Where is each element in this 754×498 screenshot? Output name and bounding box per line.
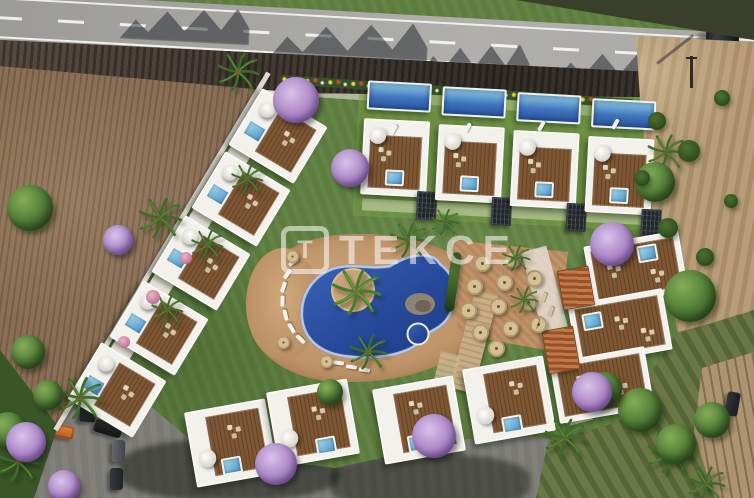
tree	[656, 424, 696, 464]
pool-umbrella	[320, 355, 333, 368]
deck-furniture	[409, 401, 415, 407]
jacaranda-tree	[572, 372, 612, 412]
palm-tree	[509, 285, 539, 315]
shrub	[634, 170, 650, 186]
straw-umbrella	[472, 324, 489, 341]
terrace-furniture	[614, 316, 620, 322]
tree	[7, 185, 53, 231]
jacaranda-tree	[48, 470, 80, 498]
terrace-furniture	[641, 328, 647, 334]
straw-umbrella	[490, 298, 507, 315]
palm-tree	[230, 162, 264, 196]
villa-pool	[516, 92, 581, 124]
tree	[317, 379, 343, 405]
roof-jacuzzi	[636, 243, 659, 263]
shrub	[648, 112, 666, 130]
shrub	[724, 194, 738, 208]
shrub	[658, 218, 678, 238]
watermark-logo: T	[281, 226, 329, 274]
straw-umbrella	[466, 278, 483, 295]
deck-furniture	[311, 406, 317, 412]
aerial-render-scene: T TEKCE	[0, 0, 754, 498]
utility-pole-crossarm	[686, 57, 697, 59]
villa-pool	[441, 86, 506, 118]
shrub	[678, 140, 700, 162]
palm-tree	[543, 416, 587, 460]
flower-bush	[146, 290, 160, 304]
palm-tree	[216, 50, 260, 94]
villa-pool	[591, 98, 656, 130]
deck-furniture	[453, 153, 458, 158]
shrub	[696, 248, 714, 266]
roof-jacuzzi	[385, 169, 405, 186]
flower-bush	[180, 252, 192, 264]
palm-tree	[190, 228, 224, 262]
roof-jacuzzi	[534, 181, 554, 198]
deck-furniture	[528, 159, 533, 164]
jacaranda-tree	[103, 225, 133, 255]
flower-bush	[118, 336, 130, 348]
deck-furniture	[603, 165, 608, 170]
roof-jacuzzi	[609, 187, 629, 204]
tree	[664, 270, 716, 322]
palm-tree	[56, 374, 104, 422]
tree	[11, 335, 45, 369]
watermark: T TEKCE	[281, 226, 518, 274]
round-jacuzzi	[408, 324, 429, 345]
deck-furniture	[509, 381, 515, 387]
jacaranda-tree	[255, 443, 297, 485]
tree	[618, 388, 662, 432]
plunge-pool	[221, 456, 244, 476]
roof-jacuzzi	[581, 311, 604, 331]
straw-umbrella	[460, 302, 477, 319]
pool-villa	[510, 130, 580, 209]
roof-jacuzzi	[459, 175, 479, 192]
tree	[33, 380, 63, 410]
terrace-furniture	[650, 269, 656, 275]
palm-tree	[686, 464, 726, 498]
terracotta-roof	[557, 266, 595, 311]
shrub	[714, 90, 730, 106]
jacaranda-tree	[6, 422, 46, 462]
palm-tree	[137, 195, 183, 241]
deck-furniture	[378, 147, 383, 152]
straw-umbrella	[502, 320, 519, 337]
deck-furniture	[227, 425, 233, 431]
jacaranda-tree	[273, 77, 319, 123]
tree	[694, 402, 730, 438]
watermark-logo-letter: T	[297, 236, 312, 265]
watermark-text: TEKCE	[339, 227, 518, 274]
utility-pole	[690, 56, 693, 88]
pool-umbrella	[277, 336, 290, 349]
palm-tree	[348, 332, 388, 372]
plunge-pool	[315, 435, 338, 455]
jacaranda-tree	[412, 414, 456, 458]
jacaranda-tree	[331, 149, 369, 187]
tree-shadow-on-drive	[330, 455, 530, 498]
parked-car-gray	[112, 440, 126, 462]
sun-lounger	[280, 295, 284, 306]
pool-villa	[435, 124, 505, 203]
parked-car-dark	[110, 468, 123, 490]
jacaranda-tree	[590, 222, 634, 266]
villa-pool	[367, 80, 432, 112]
plunge-pool	[501, 414, 524, 434]
straw-umbrella	[488, 340, 505, 357]
